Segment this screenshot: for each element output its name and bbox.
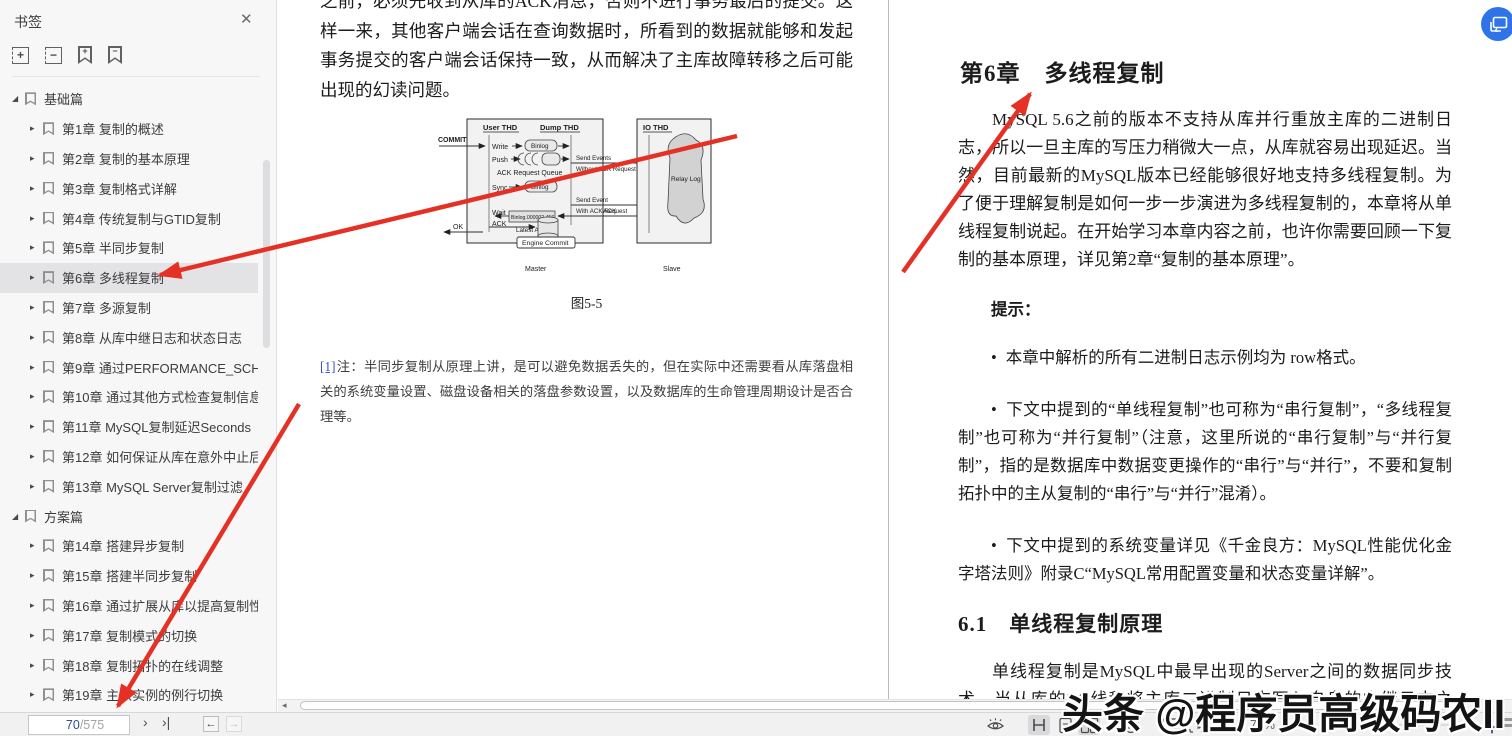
caret-collapsed-icon[interactable]: ▸: [30, 451, 43, 462]
bookmark-item[interactable]: ▸第8章 从库中继日志和状态日志: [0, 322, 258, 352]
page-number-box[interactable]: /575: [28, 715, 130, 735]
caret-collapsed-icon[interactable]: ▸: [30, 660, 43, 671]
zoom-level[interactable]: 75%: [1250, 718, 1275, 732]
caret-collapsed-icon[interactable]: ▸: [30, 183, 43, 194]
bookmark-icon: [43, 450, 54, 463]
zoom-slider-track[interactable]: [1330, 724, 1468, 726]
bookmark-item-chapter6[interactable]: ▸第6章 多线程复制: [0, 263, 258, 293]
figure-caption: 图5-5: [437, 292, 737, 312]
bookmark-item[interactable]: ▸第17章 复制模式的切换: [0, 620, 258, 650]
bookmark-icon: [43, 659, 54, 672]
caret-collapsed-icon[interactable]: ▸: [30, 153, 43, 164]
bullet-icon: •: [991, 536, 997, 555]
bookmark-item[interactable]: ▸第2章 复制的基本原理: [0, 144, 258, 174]
continuous-scroll-mode-icon[interactable]: [1028, 715, 1050, 735]
caret-collapsed-icon[interactable]: ▸: [30, 242, 43, 253]
bookmarks-tree: ◢基础篇 ▸第1章 复制的概述 ▸第2章 复制的基本原理 ▸第3章 复制格式详解…: [0, 84, 258, 710]
collapse-all-button[interactable]: −: [45, 47, 62, 64]
bookmark-item[interactable]: ▸第7章 多源复制: [0, 293, 258, 323]
add-bookmark-button[interactable]: +: [78, 46, 92, 64]
actual-size-icon[interactable]: 1:1: [1160, 715, 1182, 735]
svg-text:Relay Log: Relay Log: [671, 176, 701, 183]
bookmark-item[interactable]: ▸第9章 通过PERFORMANCE_SCHI: [0, 352, 258, 382]
window-translate-icon: [1489, 16, 1508, 33]
fit-width-icon[interactable]: [1214, 715, 1236, 735]
caret-collapsed-icon[interactable]: ▸: [30, 570, 43, 581]
scroll-left-icon[interactable]: ◂: [282, 700, 287, 711]
bookmark-icon: [43, 629, 54, 642]
cropped-icon: [1504, 718, 1512, 730]
caret-collapsed-icon[interactable]: ▸: [30, 421, 43, 432]
bookmark-icon: [43, 212, 54, 225]
plus-icon: +: [78, 47, 92, 56]
bottom-toolbar: /575 › ›| ← → 1:1 75% ⌄ − ＋: [0, 712, 1512, 736]
bullet-icon: •: [991, 400, 997, 419]
bookmark-item[interactable]: ▸第4章 传统复制与GTID复制: [0, 203, 258, 233]
replication-diagram: User THD Dump THD COMMIT Write Binlog Pu…: [437, 113, 737, 275]
bullet-item: •本章中解析的所有二进制日志示例均为 row格式。: [958, 344, 1452, 372]
bookmark-item[interactable]: ▸第3章 复制格式详解: [0, 173, 258, 203]
chapter-title: 第6章 多线程复制: [960, 54, 1452, 88]
bookmarks-panel: 书签 ✕ + − + − ◢基础篇 ▸第1章 复制的概述 ▸第2章 复制的基本原…: [0, 0, 277, 712]
bookmark-icon: [43, 182, 54, 195]
floating-widget-badge[interactable]: [1481, 7, 1512, 41]
bullet-item: •下文中提到的系统变量详见《千金良方：MySQL性能优化金字塔法则》附录C“My…: [958, 532, 1452, 588]
bookmark-icon: [43, 301, 54, 314]
svg-text:ACK Request Queue: ACK Request Queue: [497, 170, 562, 177]
zoom-caret-icon[interactable]: ⌄: [1286, 716, 1294, 727]
single-page-mode-icon[interactable]: [1054, 715, 1076, 735]
svg-text:Send Event: Send Event: [576, 197, 608, 204]
bookmark-icon: [43, 480, 54, 493]
svg-text:Dump THD: Dump THD: [540, 123, 579, 132]
zoom-slider-handle[interactable]: [1372, 717, 1387, 732]
last-page-button[interactable]: ›|: [162, 714, 170, 730]
eye-protection-icon[interactable]: [984, 715, 1006, 735]
bookmark-icon: [43, 539, 54, 552]
svg-text:Send Events: Send Events: [576, 155, 611, 162]
caret-collapsed-icon[interactable]: ▸: [30, 540, 43, 551]
page-total: /575: [80, 718, 104, 732]
bookmark-icon: [43, 122, 54, 135]
bookmarks-title: 书签: [14, 12, 42, 32]
bookmark-icon: [43, 599, 54, 612]
footnote: [1]注：半同步复制从原理上讲，是可以避免数据丢失的，但在实际中还需要看从库落盘…: [320, 354, 853, 429]
caret-expanded-icon[interactable]: ◢: [12, 512, 25, 521]
caret-collapsed-icon[interactable]: ▸: [30, 213, 43, 224]
bookmark-item[interactable]: ▸第11章 MySQL复制延迟Seconds: [0, 412, 258, 442]
minus-icon: −: [108, 47, 122, 56]
bullet-icon: •: [991, 348, 997, 367]
bookmark-icon: [43, 420, 54, 433]
bookmark-icon: [43, 331, 54, 344]
svg-text:IO THD: IO THD: [643, 123, 669, 132]
caret-collapsed-icon[interactable]: ▸: [30, 302, 43, 313]
bookmarks-toolbar: + − + −: [12, 46, 260, 77]
expand-all-button[interactable]: +: [12, 47, 29, 64]
caret-collapsed-icon[interactable]: ▸: [30, 689, 43, 700]
bookmark-icon: [43, 390, 54, 403]
page-number-input[interactable]: [54, 718, 80, 732]
svg-text:Write: Write: [492, 144, 508, 151]
bookmark-item[interactable]: ▸第12章 如何保证从库在意外中止后: [0, 442, 258, 472]
bookmark-item[interactable]: ▸第19章 主从实例的例行切换: [0, 680, 258, 710]
svg-text:Binlog: Binlog: [531, 184, 549, 191]
page-left: 之前，必须先收到从库的ACK消息，否则不进行事务最后的提交。这样一来，其他客户端…: [320, 0, 853, 429]
remove-bookmark-button[interactable]: −: [108, 46, 122, 64]
paragraph: MySQL 5.6之前的版本不支持从库并行重放主库的二进制日志，所以一旦主库的写…: [958, 106, 1452, 274]
svg-text:Slave: Slave: [663, 266, 681, 273]
caret-collapsed-icon[interactable]: ▸: [30, 362, 43, 373]
bookmark-item[interactable]: ▸第15章 搭建半同步复制: [0, 561, 258, 591]
forward-button[interactable]: →: [226, 716, 242, 732]
horizontal-scrollbar[interactable]: ◂: [278, 699, 1512, 712]
two-page-mode-icon[interactable]: [1078, 715, 1100, 735]
bookmark-icon: [43, 361, 54, 374]
zoom-out-button[interactable]: −: [1303, 715, 1312, 733]
caret-collapsed-icon[interactable]: ▸: [30, 481, 43, 492]
bookmark-icon: [43, 241, 54, 254]
bookmark-item[interactable]: ▸第18章 复制拓扑的在线调整: [0, 650, 258, 680]
tip-label: 提示：: [958, 296, 1452, 320]
scrollbar-thumb[interactable]: [300, 701, 1458, 710]
figure-5-5: User THD Dump THD COMMIT Write Binlog Pu…: [437, 113, 737, 312]
svg-text:Without ACK Request: Without ACK Request: [576, 166, 636, 173]
bookmark-item[interactable]: ▸第16章 通过扩展从库以提高复制性: [0, 591, 258, 621]
caret-collapsed-icon[interactable]: ▸: [30, 332, 43, 343]
footnote-link[interactable]: [1]: [320, 359, 336, 374]
svg-text:1:1: 1:1: [1166, 721, 1176, 730]
zoom-in-button[interactable]: ＋: [1484, 714, 1500, 738]
bookmark-item[interactable]: ▸第5章 半同步复制: [0, 233, 258, 263]
svg-text:Master: Master: [525, 266, 547, 273]
caret-collapsed-icon[interactable]: ▸: [30, 600, 43, 611]
svg-text:Binlog: Binlog: [531, 143, 549, 150]
bookmark-icon: [25, 92, 36, 105]
caret-collapsed-icon[interactable]: ▸: [30, 630, 43, 641]
bookmark-icon: [43, 688, 54, 701]
section-title: 6.1 单线程复制原理: [958, 608, 1452, 638]
paragraph: 之前，必须先收到从库的ACK消息，否则不进行事务最后的提交。这样一来，其他客户端…: [320, 0, 853, 105]
svg-text:User THD: User THD: [483, 123, 518, 132]
caret-expanded-icon[interactable]: ◢: [12, 94, 25, 103]
bookmark-icon: [43, 271, 54, 284]
svg-text:COMMIT: COMMIT: [438, 137, 467, 144]
bookmark-item[interactable]: ▸第13章 MySQL Server复制过滤: [0, 471, 258, 501]
page-right: 第6章 多线程复制 MySQL 5.6之前的版本不支持从库并行重放主库的二进制日…: [958, 0, 1452, 699]
svg-text:Engine Commit: Engine Commit: [522, 240, 569, 247]
svg-text:With ACK Request: With ACK Request: [576, 208, 628, 215]
slideshow-play-icon[interactable]: [1120, 715, 1142, 735]
svg-text:ACK: ACK: [603, 208, 617, 215]
bookmark-section[interactable]: ◢方案篇: [0, 501, 258, 531]
close-icon[interactable]: ✕: [240, 10, 253, 28]
paragraph: 单线程复制是MySQL中最早出现的Server之间的数据同步技术，当从库的I/O…: [958, 658, 1452, 699]
bullet-item: •下文中提到的“单线程复制”也可称为“串行复制”，“多线程复制”也可称为“并行复…: [958, 396, 1452, 508]
back-button[interactable]: ←: [203, 716, 219, 732]
caret-collapsed-icon[interactable]: ▸: [30, 391, 43, 402]
svg-text:OK: OK: [453, 224, 463, 231]
plus-icon: +: [17, 49, 24, 61]
page-divider: [888, 0, 889, 699]
bookmark-item[interactable]: ▸第1章 复制的概述: [0, 114, 258, 144]
bookmark-section[interactable]: ◢基础篇: [0, 84, 258, 114]
sidebar-scrollbar[interactable]: [263, 160, 270, 348]
document-view: 之前，必须先收到从库的ACK消息，否则不进行事务最后的提交。这样一来，其他客户端…: [278, 0, 1512, 699]
caret-collapsed-icon[interactable]: ▸: [30, 272, 43, 283]
svg-text:Push: Push: [492, 157, 508, 164]
bookmark-icon: [43, 569, 54, 582]
bookmark-item[interactable]: ▸第14章 搭建异步复制: [0, 531, 258, 561]
bookmark-icon: [25, 510, 36, 523]
next-page-button[interactable]: ›: [143, 714, 148, 730]
svg-text:Sync: Sync: [492, 185, 508, 192]
bookmark-item[interactable]: ▸第10章 通过其他方式检查复制信息: [0, 382, 258, 412]
minus-icon: −: [50, 49, 57, 61]
bookmark-icon: [43, 152, 54, 165]
fit-page-icon[interactable]: [1186, 715, 1208, 735]
caret-collapsed-icon[interactable]: ▸: [30, 123, 43, 134]
